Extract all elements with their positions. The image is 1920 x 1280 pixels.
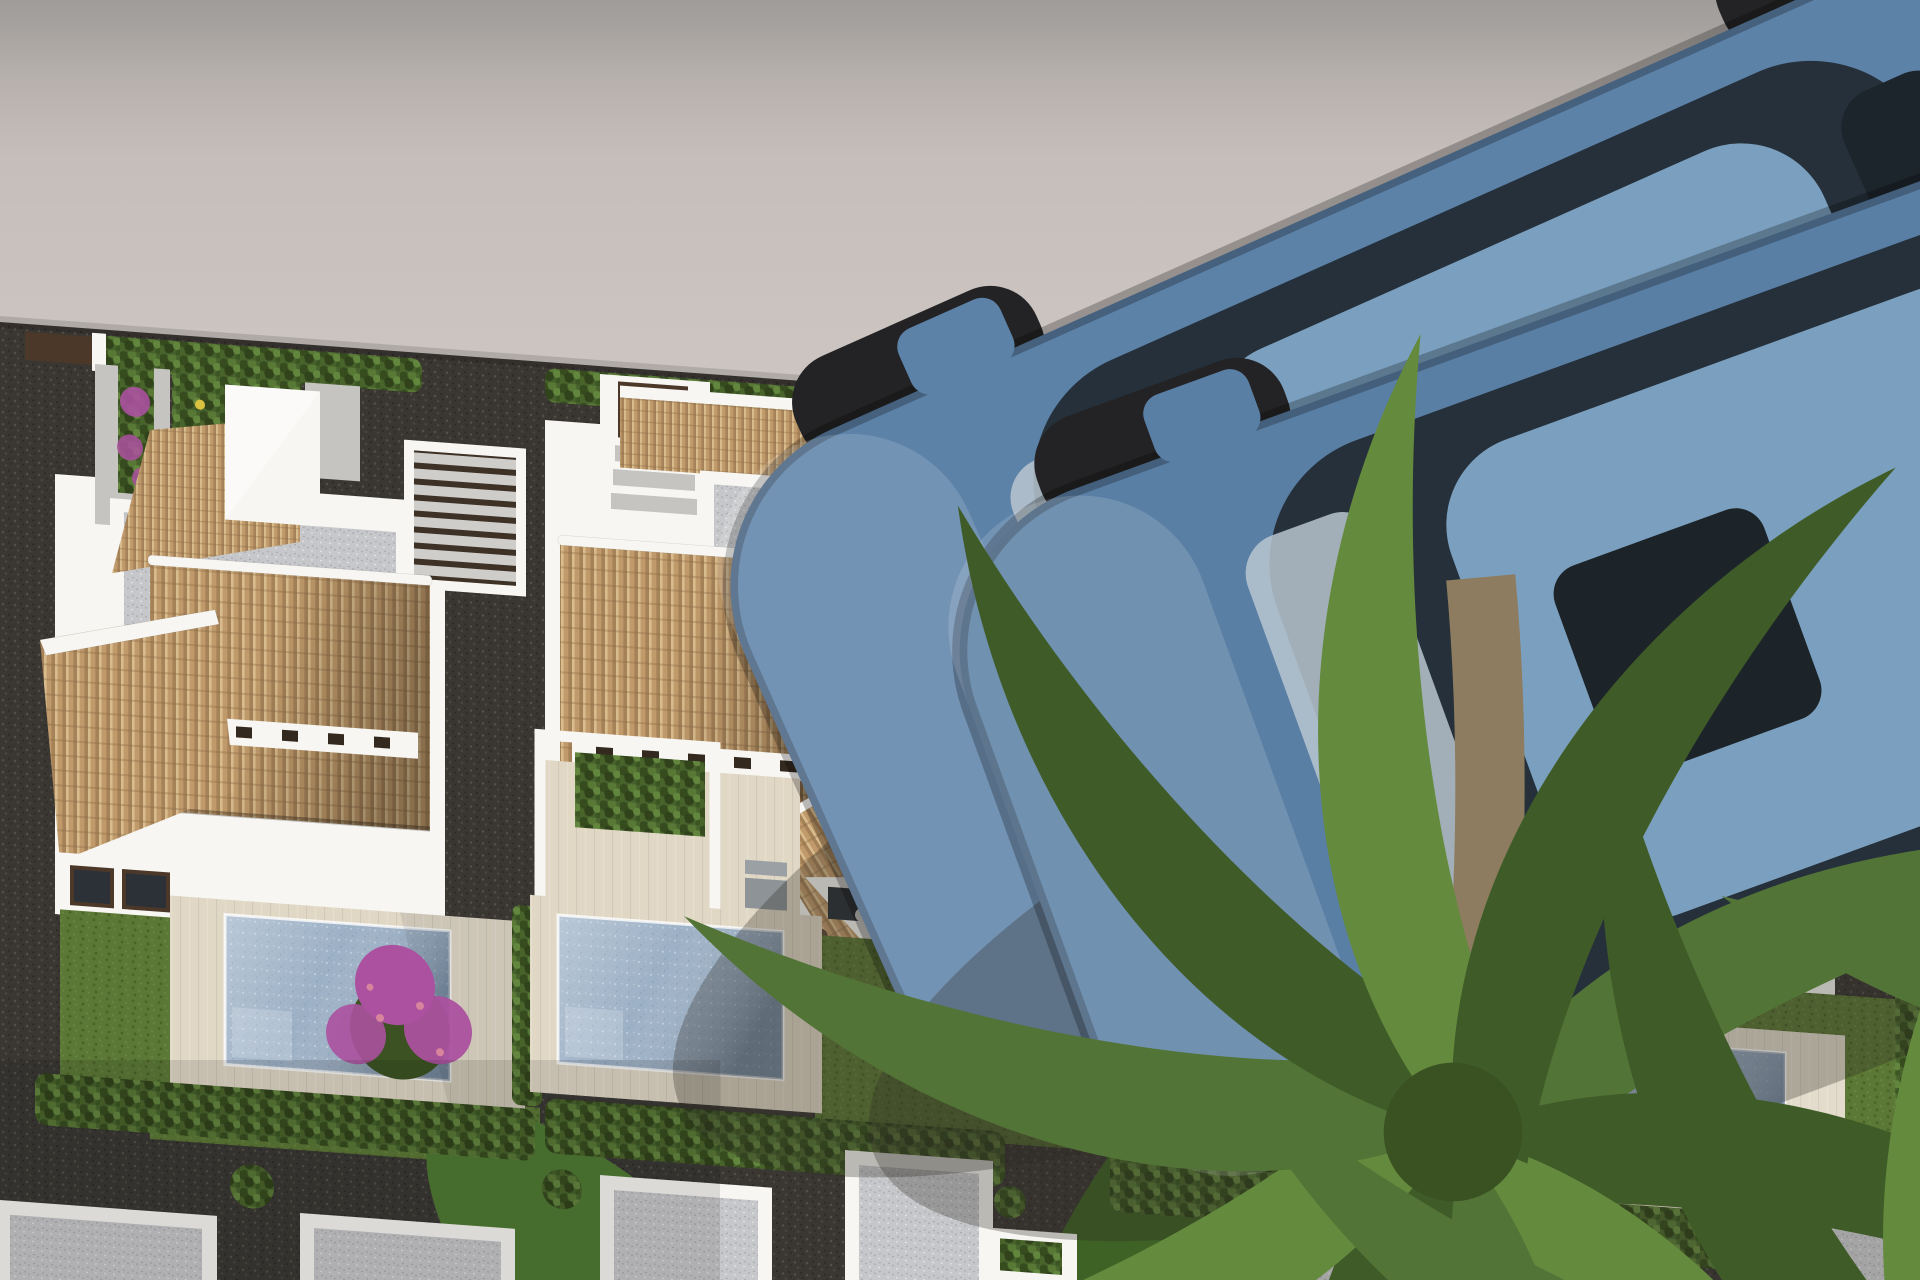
patio-planter xyxy=(575,752,705,837)
villa-1-gate xyxy=(25,332,95,365)
scene-svg: Aerial 3D render of a new-build resident… xyxy=(0,0,1920,1280)
corner-shade xyxy=(0,1060,720,1280)
villa-1-pergola xyxy=(404,440,526,597)
aerial-render: Aerial 3D render of a new-build resident… xyxy=(0,0,1920,1280)
